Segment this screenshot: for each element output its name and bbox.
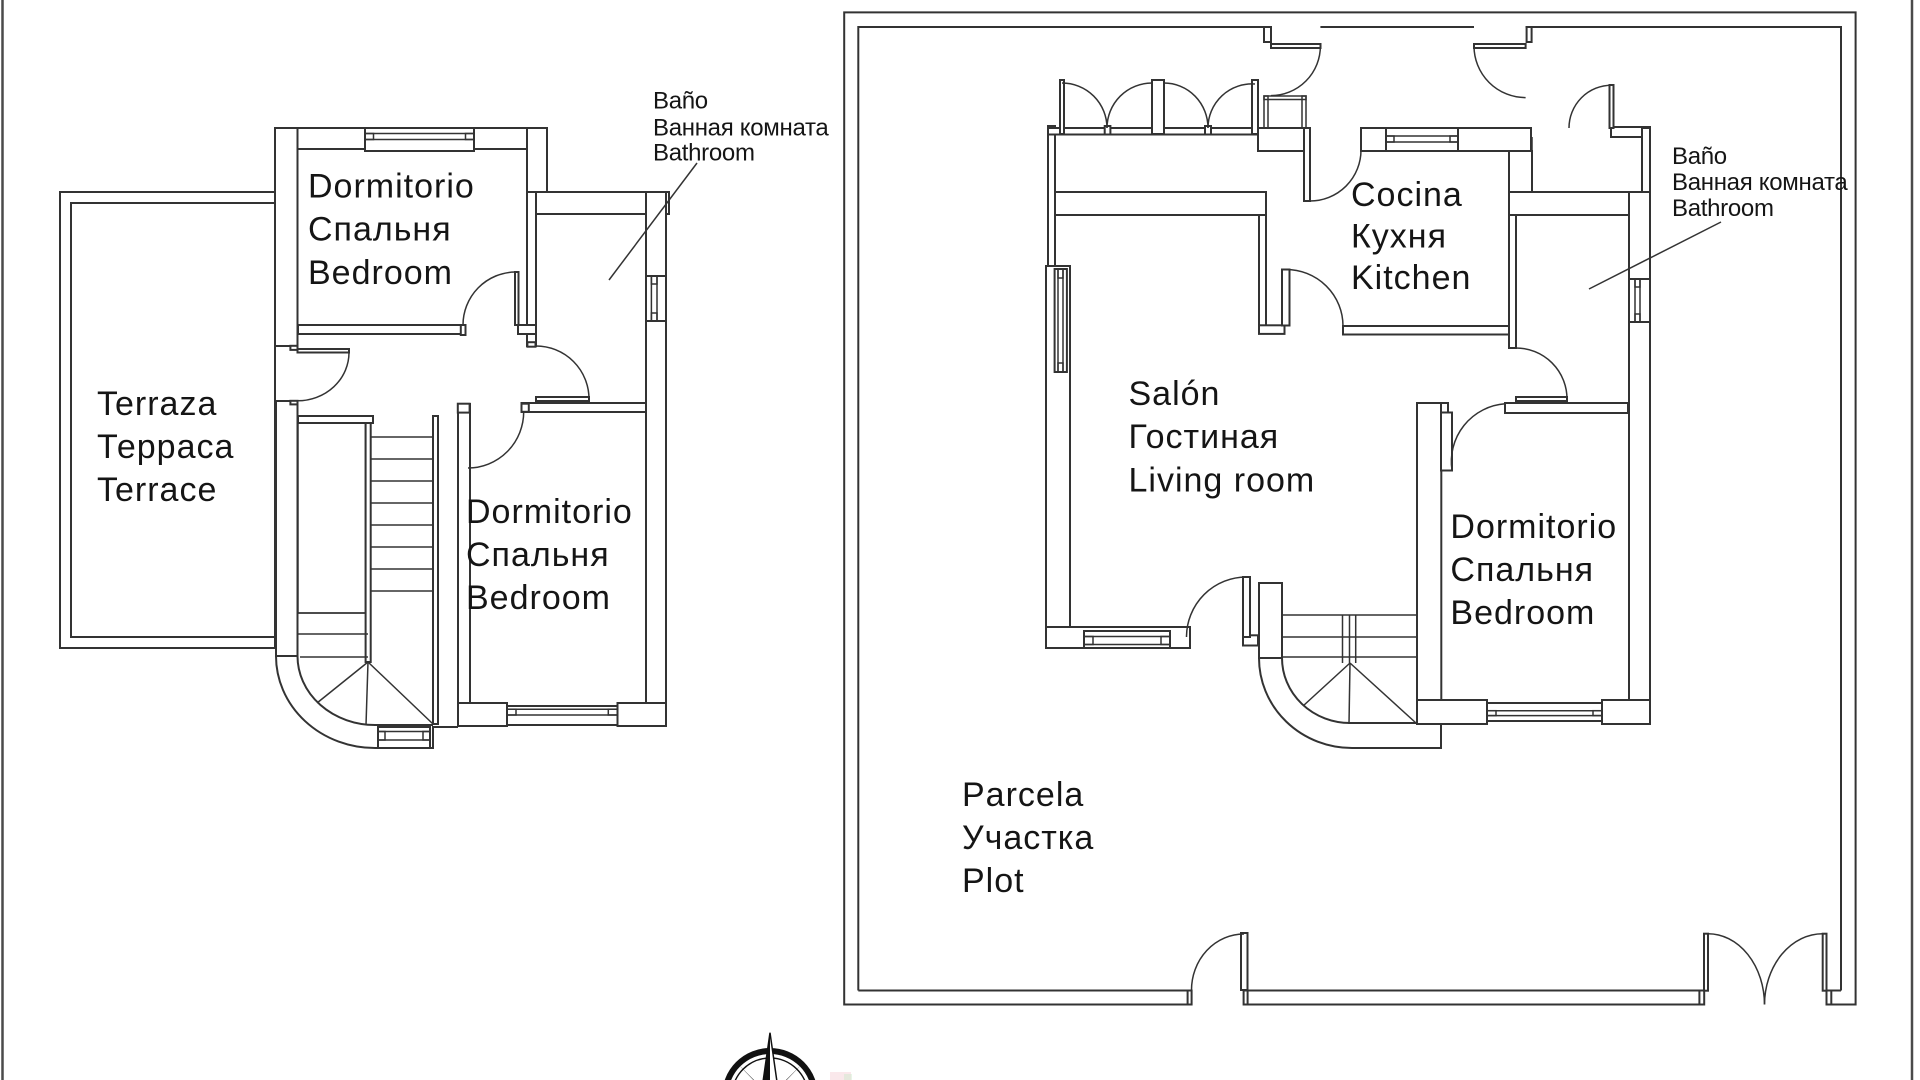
svg-text:Участка: Участка [962,819,1094,857]
svg-text:Parcela: Parcela [962,776,1084,814]
svg-text:Спальня: Спальня [308,211,452,249]
svg-text:Terraza: Terraza [97,385,217,423]
svg-text:Bedroom: Bedroom [466,579,611,617]
svg-text:Bathroom: Bathroom [1672,195,1774,222]
svg-text:Спальня: Спальня [1450,551,1594,589]
svg-text:Ванная комната: Ванная комната [1672,169,1848,196]
svg-text:Dormitorio: Dormitorio [308,168,475,206]
svg-text:Baño: Baño [1672,143,1727,170]
svg-text:Plot: Plot [962,862,1025,900]
svg-text:Kitchen: Kitchen [1351,259,1471,297]
svg-text:Terrace: Terrace [97,471,217,509]
svg-text:Bathroom: Bathroom [653,140,755,167]
svg-text:Dormitorio: Dormitorio [1450,508,1617,546]
svg-text:Salón: Salón [1129,375,1221,413]
svg-text:Baño: Baño [653,88,708,115]
svg-text:Bedroom: Bedroom [1450,594,1595,632]
svg-text:Терраса: Терраса [97,428,234,466]
svg-text:Cocina: Cocina [1351,176,1463,214]
svg-text:Ванная комната: Ванная комната [653,115,829,142]
svg-text:Гостиная: Гостиная [1129,418,1280,456]
svg-text:Living room: Living room [1129,462,1316,500]
svg-text:Спальня: Спальня [466,536,610,574]
svg-text:Dormitorio: Dormitorio [466,493,633,531]
svg-text:Кухня: Кухня [1351,218,1447,256]
svg-text:Bedroom: Bedroom [308,254,453,292]
